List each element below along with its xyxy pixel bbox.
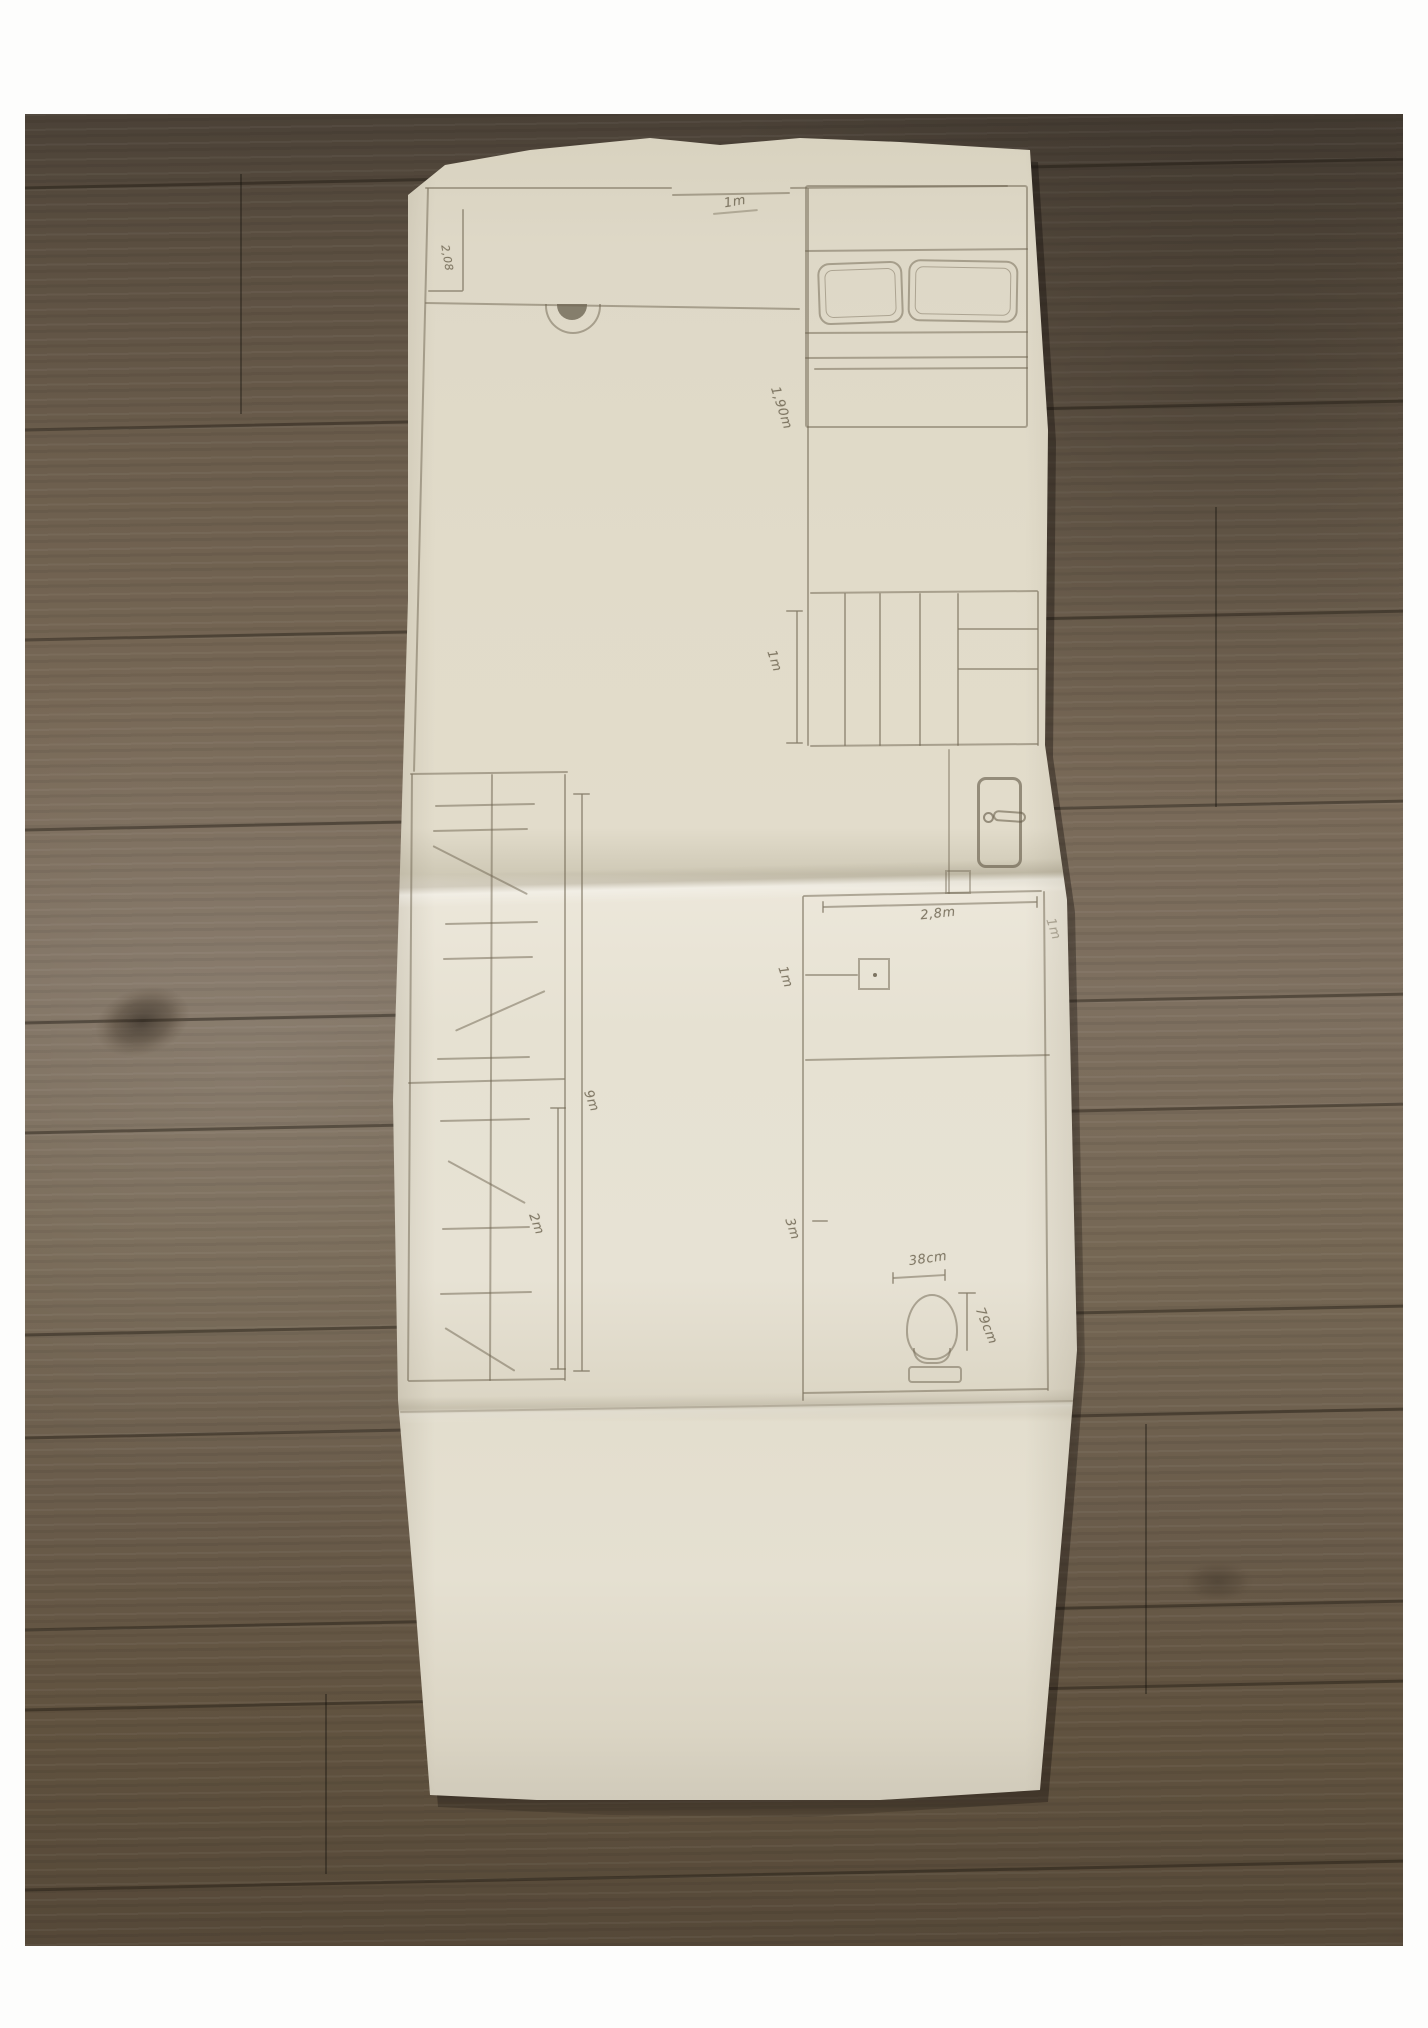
wood-plank-seam <box>25 1859 1403 1892</box>
dimension-label-toilet-width: 38cm <box>908 1249 948 1269</box>
wood-plank-joint <box>1215 507 1217 807</box>
wood-plank-joint <box>240 174 242 414</box>
dimension-label-toilet-depth: 79cm <box>972 1305 1000 1346</box>
wood-floor-photo: 1m2,081,90m1m9m2m2,8m1m1m3m38cm79cm <box>25 114 1403 1946</box>
wood-plank-joint <box>325 1694 327 1874</box>
dimension-label-room-depth: 3m <box>781 1216 802 1241</box>
dimension-label-room-width: 2,8m <box>920 905 957 924</box>
dimension-label-closet-width: 1m <box>763 648 784 673</box>
dimension-label-opening-width: 1m <box>723 193 747 212</box>
sketch-labels-layer: 1m2,081,90m1m9m2m2,8m1m1m3m38cm79cm <box>390 128 1080 1800</box>
wood-plank-joint <box>1145 1424 1147 1694</box>
dimension-label-wall-seg-right: 1m <box>1042 916 1063 941</box>
dimension-label-room-height-left: 2,08 <box>438 244 455 272</box>
screenshot-frame: 1m2,081,90m1m9m2m2,8m1m1m3m38cm79cm <box>0 0 1428 2028</box>
sketch-paper: 1m2,081,90m1m9m2m2,8m1m1m3m38cm79cm <box>390 128 1080 1800</box>
wood-knot <box>70 962 215 1081</box>
dimension-label-bed-length: 1,90m <box>767 385 795 432</box>
dimension-label-wall-seg-left: 1m <box>774 964 795 989</box>
dimension-label-wall-length: 9m <box>580 1088 602 1114</box>
dimension-label-closet-depth: 2m <box>525 1211 547 1237</box>
wood-knot <box>1170 1554 1265 1609</box>
